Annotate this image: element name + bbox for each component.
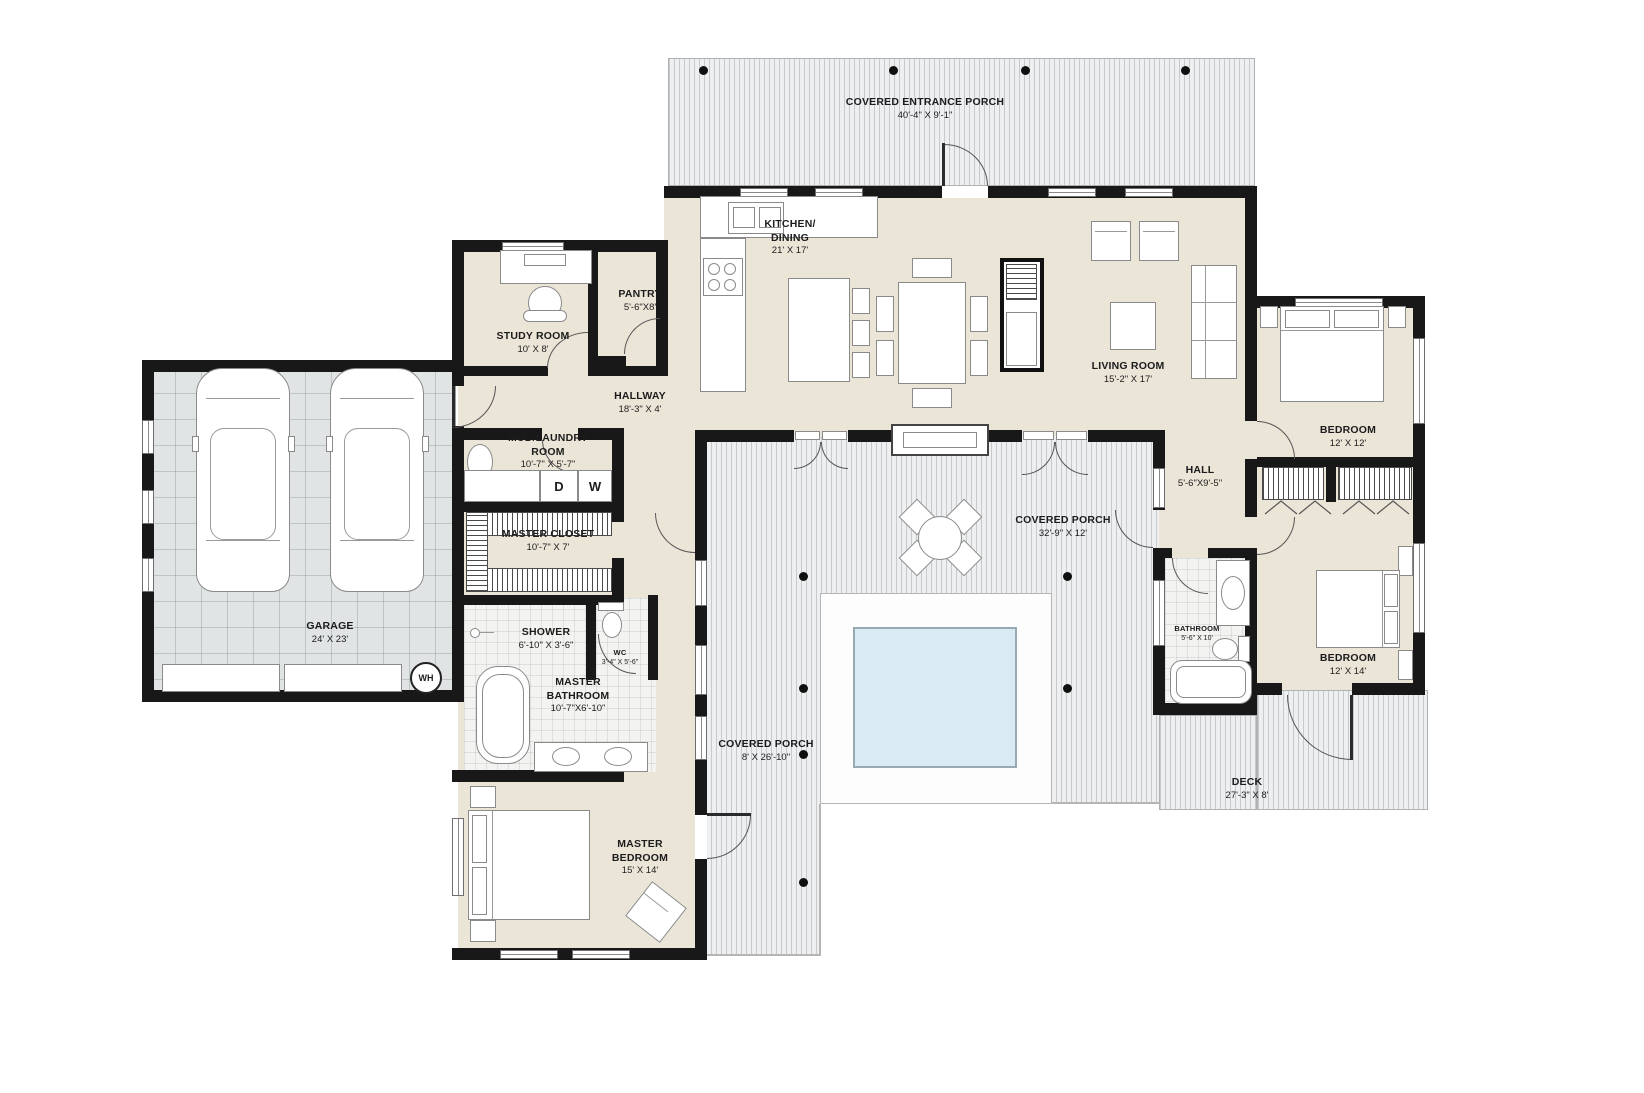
pillow [1384,611,1398,644]
car-mirror [326,436,333,452]
car-mirror [192,436,199,452]
door-leaf [707,813,751,816]
washer-box: W [578,470,612,502]
room-label-hall: HALL 5'-6"X9'-5" [1178,464,1222,490]
room-dims: 12' X 12' [1320,438,1376,450]
room-dims: 32'-9" X 12' [1015,528,1110,540]
bed-line [1382,571,1383,647]
vanity-sink [552,747,580,766]
nightstand [470,920,496,942]
window [142,558,154,592]
car-line [340,540,414,541]
bathtub-inner [482,674,524,758]
garage-door [162,664,280,692]
laundry-cabinet [464,470,540,502]
car-roof [344,428,410,540]
door-leaf [822,431,847,440]
washer-label: W [589,479,601,494]
coffee-table [1110,302,1156,350]
garage-door [284,664,402,692]
room-name: HALL [1178,464,1222,478]
room-name: PANTRY [618,288,661,302]
wall [1153,548,1172,558]
room-label-study-room: STUDY ROOM 10' X 8' [497,330,570,356]
wall [586,600,596,680]
window [142,490,154,524]
window [1153,580,1165,646]
closet-rack [466,512,488,592]
water-heater: WH [410,662,442,694]
closet-rack [1338,467,1412,500]
wall [1245,186,1257,308]
window [1413,338,1425,424]
dining-chair [912,258,952,278]
closet-rack [1262,467,1324,500]
wall [588,366,668,376]
door-leaf [1350,695,1353,760]
room-name: MASTER BEDROOM [598,838,682,865]
fireplace-grate [1006,264,1037,300]
sofa-line [1192,340,1236,341]
armchair [1091,221,1131,261]
porch-post [1021,66,1030,75]
bar-stool [852,320,870,346]
armchair-line [1095,231,1127,232]
room-dims: 15'-2" X 17' [1092,374,1165,386]
window [500,950,558,959]
room-label-bedroom-2: BEDROOM 12' X 14' [1320,652,1376,678]
room-label-pantry: PANTRY 5'-6"X8' [618,288,661,314]
buffet-window-inner [903,432,977,448]
door-leaf [1023,431,1054,440]
room-name: MUD/LAUNDRY ROOM [500,432,596,459]
room-label-bathroom: BATHROOM 5'-6" X 10' [1174,624,1219,643]
toilet-tank [1238,636,1250,662]
stove-burner [724,279,736,291]
vanity-sink [604,747,632,766]
bar-stool [852,288,870,314]
desk-monitor [524,254,566,266]
wall [985,430,1022,442]
wall [1352,683,1425,695]
room-label-bedroom-1: BEDROOM 12' X 12' [1320,424,1376,450]
bar-stool [852,352,870,378]
window [1048,188,1096,197]
car-mirror [422,436,429,452]
master-porch-door-opening [695,815,707,859]
armchair [1139,221,1179,261]
car-line [206,540,280,541]
water-heater-label: WH [419,673,434,683]
window [1125,188,1173,197]
nightstand [1398,546,1413,576]
pillow [1285,310,1330,328]
room-name: HALLWAY [614,390,666,404]
nightstand [470,786,496,808]
wall [452,502,624,512]
bed-line [1281,330,1383,331]
bathtub-inner [1176,666,1246,698]
vanity-sink [1221,576,1245,610]
shower-head-line [480,632,494,633]
porch-edge-line [819,804,821,956]
room-label-kitchen-dining: KITCHEN/ DINING 21' X 17' [750,218,830,258]
sofa-line [1192,302,1236,303]
room-dims: 40'-4" X 9'-1" [846,110,1004,122]
front-door-opening [942,186,988,198]
window [695,645,707,695]
window [1413,543,1425,633]
window [695,560,707,606]
dining-chair [970,296,988,332]
door-leaf [942,143,945,186]
porch-post [1181,66,1190,75]
porch-edge-line [1052,802,1159,804]
window [695,716,707,760]
room-dims: 24' X 23' [306,634,353,646]
dining-chair [876,296,894,332]
door-leaf [452,386,455,428]
room-dims: 6'-10" X 3'-6" [519,640,574,652]
porch-post [799,878,808,887]
toilet-tank [598,602,624,611]
porch-post [699,66,708,75]
stove-burner [708,279,720,291]
sofa [1191,265,1237,379]
wall [848,430,897,442]
bed-line [492,811,493,919]
room-dims: 18'-3" X 4' [614,404,666,416]
room-name: SHOWER [519,626,574,640]
room-label-master-bedroom: MASTER BEDROOM 15' X 14' [598,838,682,878]
room-label-covered-porch-side: COVERED PORCH 8' X 26'-10" [718,738,813,764]
room-label-covered-entrance-porch: COVERED ENTRANCE PORCH 40'-4" X 9'-1" [846,96,1004,122]
room-label-covered-porch-rear: COVERED PORCH 32'-9" X 12' [1015,514,1110,540]
car-roof [210,428,276,540]
room-dims: 12' X 14' [1320,666,1376,678]
room-label-master-closet: MASTER CLOSET 10'-7" X 7' [502,528,594,554]
room-name: MASTER BATHROOM [535,676,621,703]
wall [612,558,624,598]
window [142,420,154,454]
wall [1245,459,1257,517]
room-name: GARAGE [306,620,353,634]
room-dims: 8' X 26'-10" [718,752,813,764]
car-line [340,398,414,399]
wall [612,512,624,522]
wall [452,366,548,376]
room-dims: 27'-3" X 8' [1226,790,1269,802]
nightstand [1388,306,1406,328]
room-label-hallway: HALLWAY 18'-3" X 4' [614,390,666,416]
wall [612,428,624,512]
room-label-garage: GARAGE 24' X 23' [306,620,353,646]
room-name: COVERED ENTRANCE PORCH [846,96,1004,110]
wall [452,240,464,378]
nightstand [1398,650,1413,680]
dining-table [898,282,966,384]
shower-head-icon [470,628,480,638]
wall [1326,457,1336,502]
pool [853,627,1017,768]
wall [1153,703,1257,715]
room-name: LIVING ROOM [1092,360,1165,374]
toilet-bowl [602,612,622,638]
car-mirror [288,436,295,452]
pillow [1384,574,1398,607]
wall [452,426,464,702]
room-label-mud-laundry: MUD/LAUNDRY ROOM 10'-7" X 5'-7" [500,432,596,472]
wall [142,360,154,702]
room-label-master-bathroom: MASTER BATHROOM 10'-7"X6'-10" [535,676,621,716]
wall [142,360,464,372]
porch-post [1063,572,1072,581]
window [1153,468,1165,508]
bifold-doors [1257,498,1425,516]
kitchen-island [788,278,850,382]
pillow [472,815,487,863]
stove-burner [708,263,720,275]
room-name: STUDY ROOM [497,330,570,344]
sofa-line [1205,266,1206,378]
patio-table [918,516,962,560]
room-dims: 5'-6"X9'-5" [1178,478,1222,490]
pillow [1334,310,1379,328]
room-label-deck: DECK 27'-3" X 8' [1226,776,1269,802]
room-name: WC [602,648,638,658]
room-dims: 15' X 14' [598,865,682,877]
wall [1088,430,1159,442]
room-dims: 10'-7" X 5'-7" [500,459,596,471]
dryer-box: D [540,470,578,502]
car-line [206,398,280,399]
floor-plan: D W WH [0,0,1644,1093]
room-dims: 3'-4" X 5'-6" [602,658,638,667]
stove-burner [724,263,736,275]
room-name: BATHROOM [1174,624,1219,634]
room-name: KITCHEN/ DINING [750,218,830,245]
room-dims: 10' X 8' [497,344,570,356]
dining-chair [876,340,894,376]
porch-post [1063,684,1072,693]
window [452,818,464,896]
room-dims: 10'-7" X 7' [502,542,594,554]
dining-chair [912,388,952,408]
door-leaf [1056,431,1087,440]
room-name: BEDROOM [1320,424,1376,438]
room-label-shower: SHOWER 6'-10" X 3'-6" [519,626,574,652]
nightstand [1260,306,1278,328]
room-dims: 5'-6"X8' [618,302,661,314]
door-leaf [795,431,820,440]
room-name: COVERED PORCH [1015,514,1110,528]
room-label-living-room: LIVING ROOM 15'-2" X 17' [1092,360,1165,386]
room-name: DECK [1226,776,1269,790]
room-dims: 10'-7"X6'-10" [535,703,621,715]
window [572,950,630,959]
wall [1245,296,1257,421]
armchair-line [1143,231,1175,232]
desk-chair-back [523,310,567,322]
porch-post [889,66,898,75]
room-dims: 21' X 17' [750,245,830,257]
wall [695,430,794,442]
wall [695,430,707,960]
pillow [472,867,487,915]
porch-post [799,684,808,693]
room-dims: 5'-6" X 10' [1174,634,1219,643]
room-name: BEDROOM [1320,652,1376,666]
wall [648,595,658,680]
fireplace-cabinet [1006,312,1037,366]
wall [598,356,626,366]
room-name: MASTER CLOSET [502,528,594,542]
dining-chair [970,340,988,376]
porch-edge-line [701,954,821,956]
room-label-wc: WC 3'-4" X 5'-6" [602,648,638,667]
room-name: COVERED PORCH [718,738,813,752]
dryer-label: D [554,479,563,494]
porch-post [799,572,808,581]
